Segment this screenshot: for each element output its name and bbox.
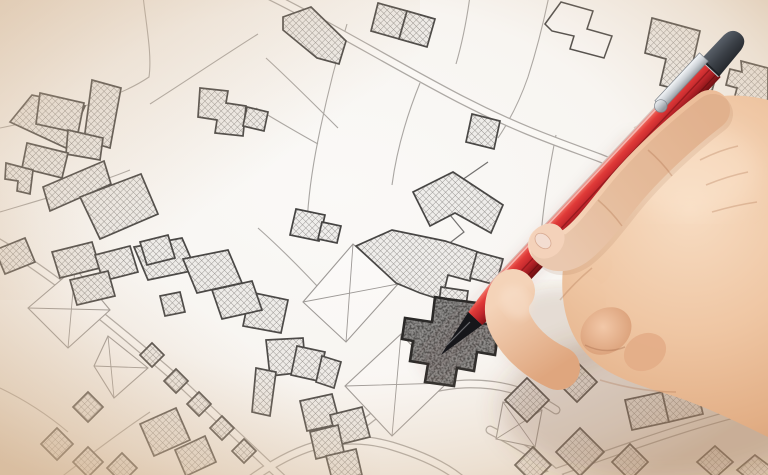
stock-photo-cadastral-map xyxy=(0,0,768,475)
cadastral-photo xyxy=(0,0,768,475)
